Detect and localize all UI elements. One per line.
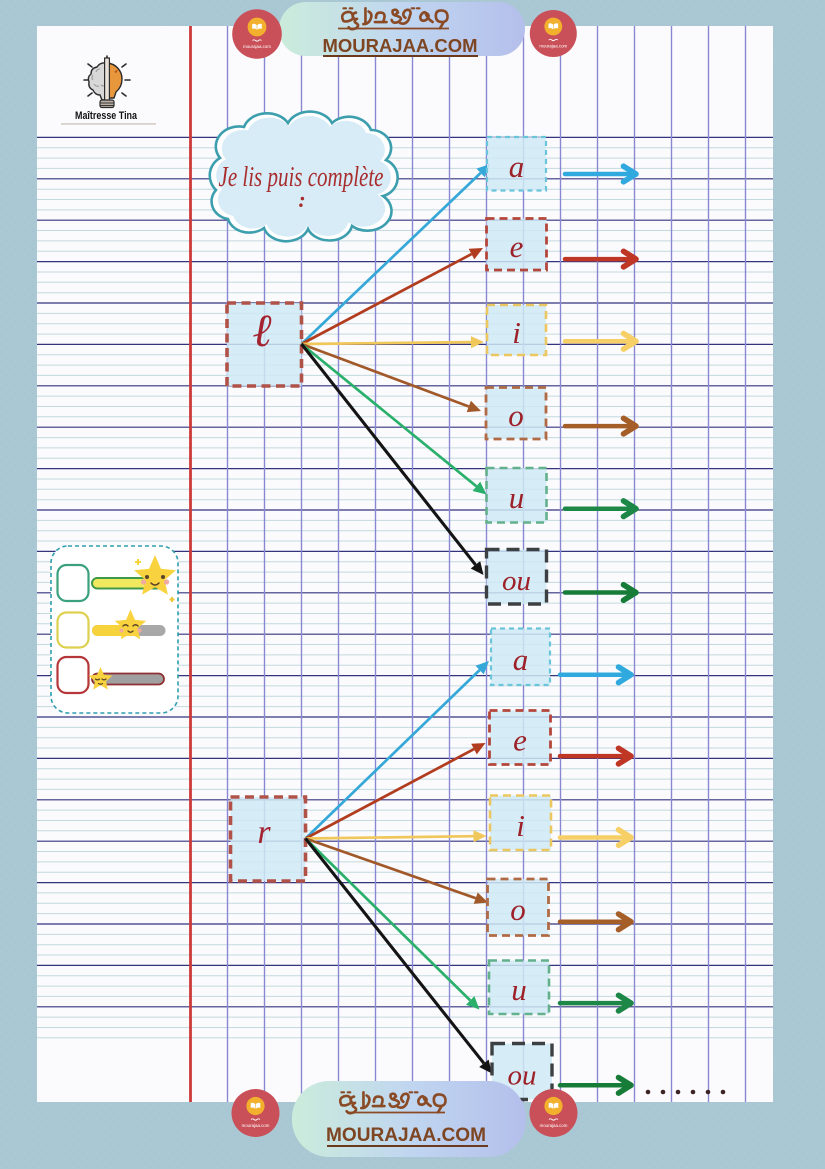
svg-text::: : — [298, 187, 305, 212]
svg-text:mourajaa.com: mourajaa.com — [540, 1123, 568, 1128]
svg-text:r: r — [257, 814, 271, 851]
svg-text:mourajaa.com: mourajaa.com — [242, 1123, 270, 1128]
svg-text:MOURAJAA.COM: MOURAJAA.COM — [323, 35, 478, 56]
svg-text:i: i — [512, 315, 521, 350]
svg-text:e: e — [513, 723, 527, 758]
svg-text:ℓ: ℓ — [252, 305, 272, 356]
svg-text:o: o — [510, 892, 526, 927]
svg-text:i: i — [516, 808, 525, 843]
svg-text:a: a — [509, 149, 525, 184]
svg-text:a: a — [513, 642, 529, 677]
svg-text:Maîtresse Tina: Maîtresse Tina — [75, 110, 138, 122]
svg-text:u: u — [511, 972, 527, 1007]
svg-text:ou: ou — [508, 1060, 537, 1092]
svg-text:mourajaa.com: mourajaa.com — [243, 44, 271, 49]
svg-text:o: o — [508, 398, 524, 433]
svg-text:mourajaa.com: mourajaa.com — [539, 44, 567, 49]
svg-text:MOURAJAA.COM: MOURAJAA.COM — [326, 1125, 486, 1146]
svg-text:e: e — [510, 229, 524, 264]
svg-text:ou: ou — [502, 565, 531, 597]
svg-text:u: u — [509, 480, 525, 515]
